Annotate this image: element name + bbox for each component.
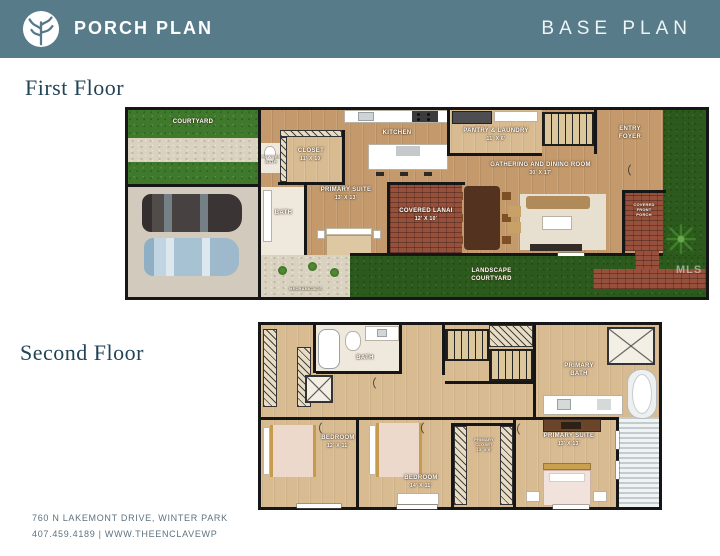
wall bbox=[447, 153, 542, 156]
bed-pillows bbox=[549, 473, 585, 482]
room-dims: 11' X 10' bbox=[280, 156, 342, 163]
header-bar: PORCH PLAN BASE PLAN bbox=[0, 0, 720, 58]
wall bbox=[445, 381, 535, 384]
label-line: BATH bbox=[549, 371, 609, 379]
label-line: LANDSCAPE bbox=[350, 268, 633, 276]
wardrobe-hatch bbox=[280, 130, 342, 137]
room-label-bath: BATH bbox=[345, 355, 385, 363]
brand-title: PORCH PLAN bbox=[74, 18, 213, 39]
double-vanity bbox=[543, 395, 623, 415]
room-label-primary-suite: PRIMARY SUITE 13' X 13' bbox=[306, 187, 386, 201]
bed-headboard bbox=[543, 463, 591, 470]
room-label-entry-foyer: ENTRY FOYER bbox=[598, 126, 662, 142]
room-name: BEDROOM bbox=[315, 435, 361, 443]
second-floor-plan: BATH PRIMARY BATH BEDROOM 1 bbox=[258, 322, 662, 510]
contact-line: 407.459.4189 | WWW.THEENCLAVEWP bbox=[32, 526, 228, 542]
kitchen-sink bbox=[358, 112, 374, 121]
bush-plant bbox=[278, 266, 287, 275]
wall bbox=[594, 110, 597, 154]
stairs bbox=[445, 329, 489, 361]
room-name: COVERED LANAI bbox=[390, 208, 462, 216]
room-label-pantry: PANTRY & LAUNDRY 11' X 6' bbox=[450, 128, 542, 142]
room-label-bath: BATH bbox=[261, 210, 306, 218]
bed-headboard bbox=[326, 228, 372, 235]
label-line: FOYER bbox=[598, 134, 662, 142]
coffee-table bbox=[542, 216, 572, 230]
wall bbox=[356, 417, 359, 507]
car-dark bbox=[142, 194, 242, 232]
tv-icon bbox=[561, 422, 581, 429]
island-cooktop bbox=[396, 146, 420, 156]
shaft-icon bbox=[305, 375, 333, 403]
bed-headboard bbox=[263, 427, 270, 475]
address-line: 760 N LAKEMONT DRIVE, WINTER PARK bbox=[32, 510, 228, 526]
room-name: GATHERING AND DINING ROOM bbox=[458, 162, 623, 170]
room-label-bedroom2: BEDROOM 14' X 11' bbox=[395, 475, 447, 489]
door-swing-arc bbox=[517, 421, 533, 437]
door-swing-arc bbox=[373, 375, 389, 391]
room-dims: 11' X 6' bbox=[450, 136, 542, 143]
room-dims: 12' X 10' bbox=[390, 216, 462, 223]
room-dims: 14' X 11' bbox=[395, 483, 447, 490]
toilet-icon bbox=[345, 331, 361, 351]
stairs bbox=[489, 349, 533, 381]
room-dims: 12' X 11' bbox=[315, 443, 361, 450]
wall bbox=[316, 371, 402, 374]
label-line: PRIMARY bbox=[549, 363, 609, 371]
room-label-front-porch: COVERED FRONT PORCH bbox=[625, 202, 663, 218]
label-line: 13' X 8' bbox=[459, 447, 509, 452]
nightstand bbox=[593, 491, 607, 502]
room-label-courtyard: COURTYARD bbox=[128, 119, 258, 127]
armchairs bbox=[508, 206, 521, 217]
laundry-appliances bbox=[452, 111, 492, 124]
pantry-counter bbox=[494, 111, 538, 122]
room-label-primary-suite: PRIMARY SUITE 13' X 13' bbox=[527, 433, 611, 447]
bush-plant bbox=[308, 262, 317, 271]
room-name: BEDROOM bbox=[395, 475, 447, 483]
room-name: PANTRY & LAUNDRY bbox=[450, 128, 542, 136]
room-label-kitchen: KITCHEN bbox=[344, 130, 450, 138]
door-swing-arc bbox=[628, 162, 644, 178]
room-dims: 13' X 13' bbox=[527, 441, 611, 448]
wall bbox=[278, 182, 345, 185]
room-label-mechanicals: MECHANICAL'S bbox=[261, 286, 350, 291]
tub-basin bbox=[632, 374, 652, 414]
wall bbox=[533, 325, 536, 417]
shower-icon bbox=[607, 327, 655, 365]
stairs bbox=[542, 112, 594, 146]
wall bbox=[399, 325, 402, 373]
label-line: ENTRY bbox=[598, 126, 662, 134]
stove-burners bbox=[417, 113, 420, 116]
sink-icon bbox=[377, 329, 387, 337]
room-label-lanai: COVERED LANAI 12' X 10' bbox=[390, 208, 462, 222]
sink-icon bbox=[557, 399, 571, 410]
room-label-gathering: GATHERING AND DINING ROOM 30' X 17' bbox=[458, 162, 623, 176]
room-label-primary-bath: PRIMARY BATH bbox=[549, 363, 609, 379]
courtyard-path bbox=[128, 138, 258, 162]
bed-headboard bbox=[369, 425, 376, 475]
room-label-landscape: LANDSCAPE COURTYARD bbox=[350, 268, 633, 284]
room-name: CLOSET bbox=[280, 148, 342, 156]
stove-icon bbox=[412, 111, 438, 122]
room-name: PRIMARY SUITE bbox=[527, 433, 611, 441]
watermark: MLS bbox=[676, 264, 702, 276]
sofa bbox=[526, 196, 590, 209]
first-floor-title: First Floor bbox=[25, 75, 124, 101]
bush-plant bbox=[330, 268, 339, 277]
door-swing-arc bbox=[319, 420, 335, 436]
flyer-page: PORCH PLAN BASE PLAN First Floor Second … bbox=[0, 0, 720, 556]
bar-stools bbox=[376, 172, 384, 176]
footer: 760 N LAKEMONT DRIVE, WINTER PARK 407.45… bbox=[32, 510, 228, 542]
room-name: PRIMARY SUITE bbox=[306, 187, 386, 195]
nightstand bbox=[317, 230, 325, 239]
room-label-bedroom1: BEDROOM 12' X 11' bbox=[315, 435, 361, 449]
plan-name: BASE PLAN bbox=[541, 18, 692, 40]
nightstand bbox=[373, 230, 381, 239]
label-line: COURTYARD bbox=[350, 276, 633, 284]
window bbox=[616, 461, 619, 479]
second-floor-title: Second Floor bbox=[20, 340, 144, 366]
room-label-primary-closet: PRIMARY CLOSET 13' X 8' bbox=[459, 437, 509, 453]
bed bbox=[270, 425, 316, 477]
bathtub-icon bbox=[318, 329, 340, 369]
porch-plan-logo-icon bbox=[22, 10, 60, 48]
label-line: PORCH bbox=[625, 212, 663, 217]
dining-table bbox=[464, 186, 500, 250]
wardrobe-hatch bbox=[263, 329, 277, 407]
nightstand bbox=[526, 491, 540, 502]
roof-below-area bbox=[617, 417, 659, 507]
room-dims: 30' X 17' bbox=[458, 170, 623, 177]
window bbox=[297, 504, 341, 508]
wall bbox=[342, 130, 345, 182]
room-dims: 13' X 13' bbox=[306, 195, 386, 202]
palm-plant-icon bbox=[664, 222, 698, 256]
brick-walkway bbox=[635, 251, 659, 271]
room-label-closet: CLOSET 11' X 10' bbox=[280, 148, 342, 162]
window bbox=[553, 505, 589, 509]
dresser bbox=[397, 493, 439, 505]
window bbox=[397, 505, 437, 509]
wall bbox=[513, 417, 516, 507]
car-blue bbox=[144, 238, 239, 276]
bed bbox=[376, 423, 422, 477]
wall bbox=[447, 110, 450, 153]
first-floor-plan: COURTYARD POWDER BATH CLOSET 11' X 10' B… bbox=[125, 107, 709, 300]
tv-console bbox=[530, 244, 582, 251]
window bbox=[616, 431, 619, 449]
stair-railing-hatch bbox=[489, 325, 533, 347]
door-swing-arc bbox=[421, 420, 437, 436]
